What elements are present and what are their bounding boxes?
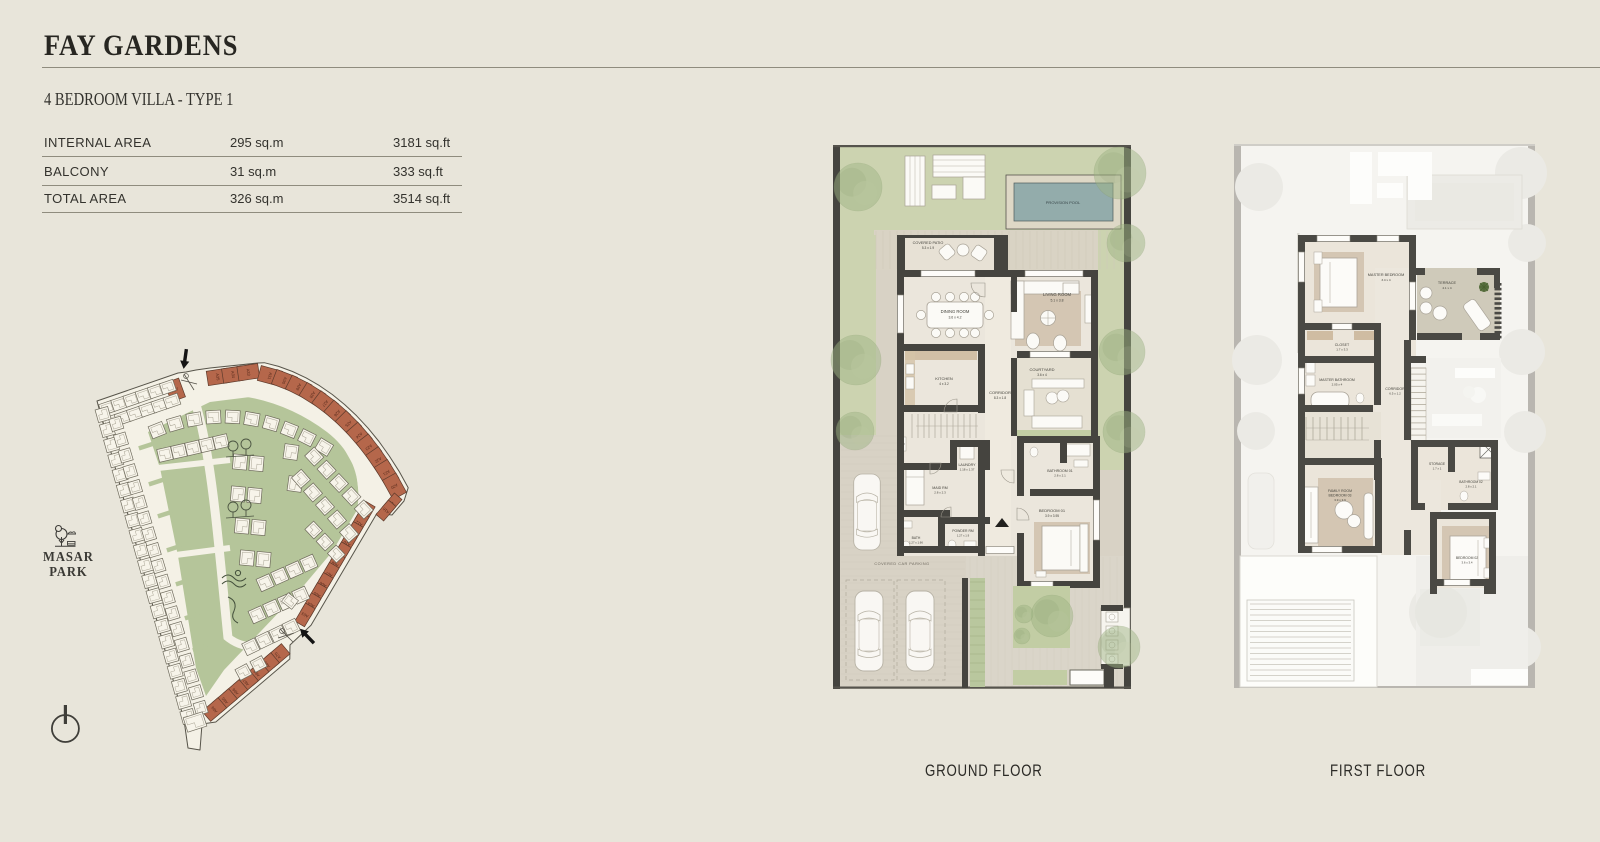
svg-text:DINING ROOM: DINING ROOM — [941, 309, 970, 314]
svg-text:6.5 x 1.2: 6.5 x 1.2 — [1389, 392, 1401, 396]
svg-text:3.9 x 3.9: 3.9 x 3.9 — [1334, 498, 1346, 502]
svg-text:3.6 x 3.4: 3.6 x 3.4 — [1461, 561, 1472, 565]
svg-text:TERRACE: TERRACE — [1438, 281, 1457, 285]
svg-text:MASTER BEDROOM: MASTER BEDROOM — [1368, 273, 1405, 277]
svg-text:COVERED PATIO: COVERED PATIO — [913, 241, 944, 245]
svg-text:1.27 x 1.66: 1.27 x 1.66 — [909, 541, 923, 545]
svg-text:2.8 x 2.1: 2.8 x 2.1 — [1054, 474, 1066, 478]
svg-text:BATHROOM 01: BATHROOM 01 — [1047, 469, 1073, 473]
svg-text:STORAGE: STORAGE — [1429, 462, 1446, 466]
svg-text:2.05 x 4: 2.05 x 4 — [1332, 383, 1343, 387]
svg-text:CORRIDOR: CORRIDOR — [1385, 387, 1405, 391]
svg-text:4.1 x 4: 4.1 x 4 — [1442, 286, 1452, 290]
svg-text:3.6 x 4: 3.6 x 4 — [1037, 373, 1047, 377]
svg-text:KITCHEN: KITCHEN — [935, 376, 953, 381]
svg-text:MASTER BATHROOM: MASTER BATHROOM — [1319, 378, 1355, 382]
svg-text:8.3 x 1.8: 8.3 x 1.8 — [994, 396, 1006, 400]
svg-text:BATHROOM 02: BATHROOM 02 — [1459, 480, 1483, 484]
svg-text:2.8 x 2.3: 2.8 x 2.3 — [934, 491, 946, 495]
svg-text:BATH: BATH — [912, 536, 921, 540]
svg-text:BEDROOM 02: BEDROOM 02 — [1456, 556, 1478, 560]
svg-text:COVERED CAR PARKING: COVERED CAR PARKING — [874, 562, 929, 566]
svg-text:3.9 x 3.95: 3.9 x 3.95 — [1045, 514, 1059, 518]
svg-text:MAID RM: MAID RM — [932, 486, 948, 490]
svg-text:PROVISION POOL: PROVISION POOL — [1046, 200, 1081, 205]
svg-text:3.6 x 4.2: 3.6 x 4.2 — [948, 316, 961, 320]
svg-text:1.7 x 3.3: 1.7 x 3.3 — [1336, 348, 1348, 352]
svg-text:3.4 x 4: 3.4 x 4 — [1381, 278, 1391, 282]
svg-text:1.18 x 1.37: 1.18 x 1.37 — [960, 468, 975, 472]
svg-text:BEDROOM 01: BEDROOM 01 — [1039, 508, 1066, 513]
svg-text:CORRIDOR: CORRIDOR — [989, 390, 1011, 395]
svg-text:FAMILY ROOM: FAMILY ROOM — [1328, 489, 1352, 493]
svg-text:5.3 x 1.9: 5.3 x 1.9 — [922, 246, 934, 250]
svg-text:COURTYARD: COURTYARD — [1030, 367, 1055, 372]
svg-text:LIVING ROOM: LIVING ROOM — [1043, 292, 1071, 297]
svg-text:POWDER RM: POWDER RM — [952, 529, 974, 533]
svg-text:BEDROOM 03: BEDROOM 03 — [1329, 494, 1352, 498]
svg-text:4 x 3.2: 4 x 3.2 — [939, 382, 949, 386]
svg-text:CLOSET: CLOSET — [1335, 343, 1350, 347]
svg-text:LAUNDRY: LAUNDRY — [958, 463, 976, 467]
svg-text:1.27 x 1.9: 1.27 x 1.9 — [957, 534, 970, 538]
svg-text:2.8 x 2.1: 2.8 x 2.1 — [1465, 485, 1476, 489]
svg-text:5.1 x 3.8: 5.1 x 3.8 — [1050, 299, 1063, 303]
svg-text:1.7 x 1: 1.7 x 1 — [1433, 467, 1442, 471]
